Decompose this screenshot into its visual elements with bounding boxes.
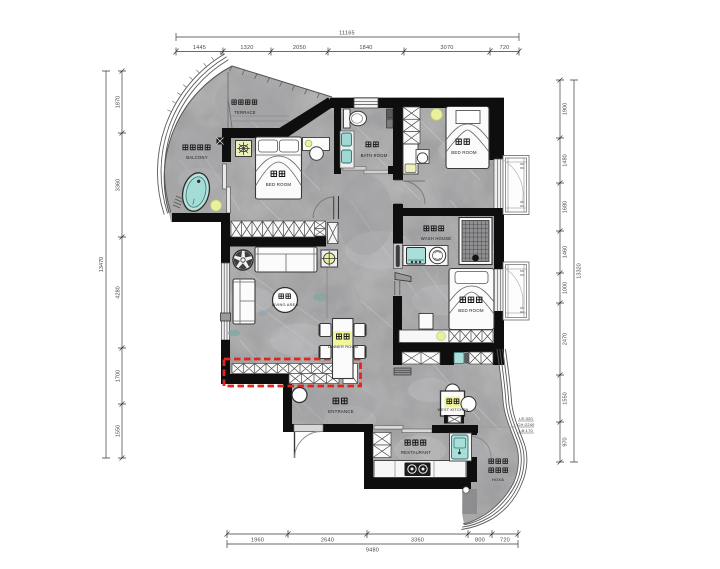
svg-text:BALCONY: BALCONY — [186, 155, 207, 160]
svg-text:1700: 1700 — [116, 370, 122, 382]
svg-text:800: 800 — [475, 538, 485, 544]
svg-text:LB:170: LB:170 — [519, 428, 533, 433]
svg-text:1000: 1000 — [563, 282, 569, 294]
svg-text:9480: 9480 — [366, 548, 379, 554]
svg-text:1320: 1320 — [240, 45, 253, 51]
svg-text:3070: 3070 — [440, 45, 453, 51]
svg-text:1480: 1480 — [563, 154, 569, 166]
svg-text:BATH ROOM: BATH ROOM — [361, 153, 388, 158]
svg-text:1680: 1680 — [563, 201, 569, 213]
svg-text:13470: 13470 — [99, 257, 105, 273]
svg-text:2050: 2050 — [293, 45, 306, 51]
svg-text:1550: 1550 — [563, 392, 569, 404]
svg-text:2470: 2470 — [563, 333, 569, 345]
svg-text:DINNER ROOM: DINNER ROOM — [328, 344, 358, 349]
svg-text:1840: 1840 — [359, 45, 372, 51]
svg-text:TERRACE: TERRACE — [234, 110, 255, 115]
svg-text:WASH HOUSE: WASH HOUSE — [421, 236, 451, 241]
svg-text:13320: 13320 — [577, 263, 583, 279]
svg-text:720: 720 — [500, 538, 510, 544]
svg-text:1900: 1900 — [563, 103, 569, 115]
svg-text:720: 720 — [500, 45, 510, 51]
svg-text:1960: 1960 — [251, 538, 264, 544]
svg-text:HOXA: HOXA — [492, 477, 504, 482]
svg-text:1870: 1870 — [116, 96, 122, 108]
svg-text:970: 970 — [563, 437, 569, 446]
svg-text:3360: 3360 — [116, 179, 122, 191]
svg-text:WEST KITCHEN: WEST KITCHEN — [437, 408, 468, 412]
svg-text:2640: 2640 — [321, 538, 334, 544]
svg-text:BED ROOM: BED ROOM — [451, 150, 477, 155]
svg-text:1550: 1550 — [116, 425, 122, 437]
svg-text:BED ROOM: BED ROOM — [266, 182, 292, 187]
svg-text:ENTRANCE: ENTRANCE — [328, 409, 354, 414]
svg-text:11165: 11165 — [339, 31, 355, 37]
svg-text:1460: 1460 — [563, 246, 569, 258]
svg-text:4280: 4280 — [116, 286, 122, 298]
svg-text:LIVING AREA: LIVING AREA — [272, 302, 299, 307]
svg-text:CH:2240: CH:2240 — [517, 422, 535, 427]
svg-text:BED ROOM: BED ROOM — [458, 308, 484, 313]
svg-text:3360: 3360 — [411, 538, 424, 544]
svg-text:1445: 1445 — [193, 45, 206, 51]
svg-text:LE:320: LE:320 — [519, 416, 533, 421]
svg-text:RESTAURANT: RESTAURANT — [401, 450, 431, 455]
